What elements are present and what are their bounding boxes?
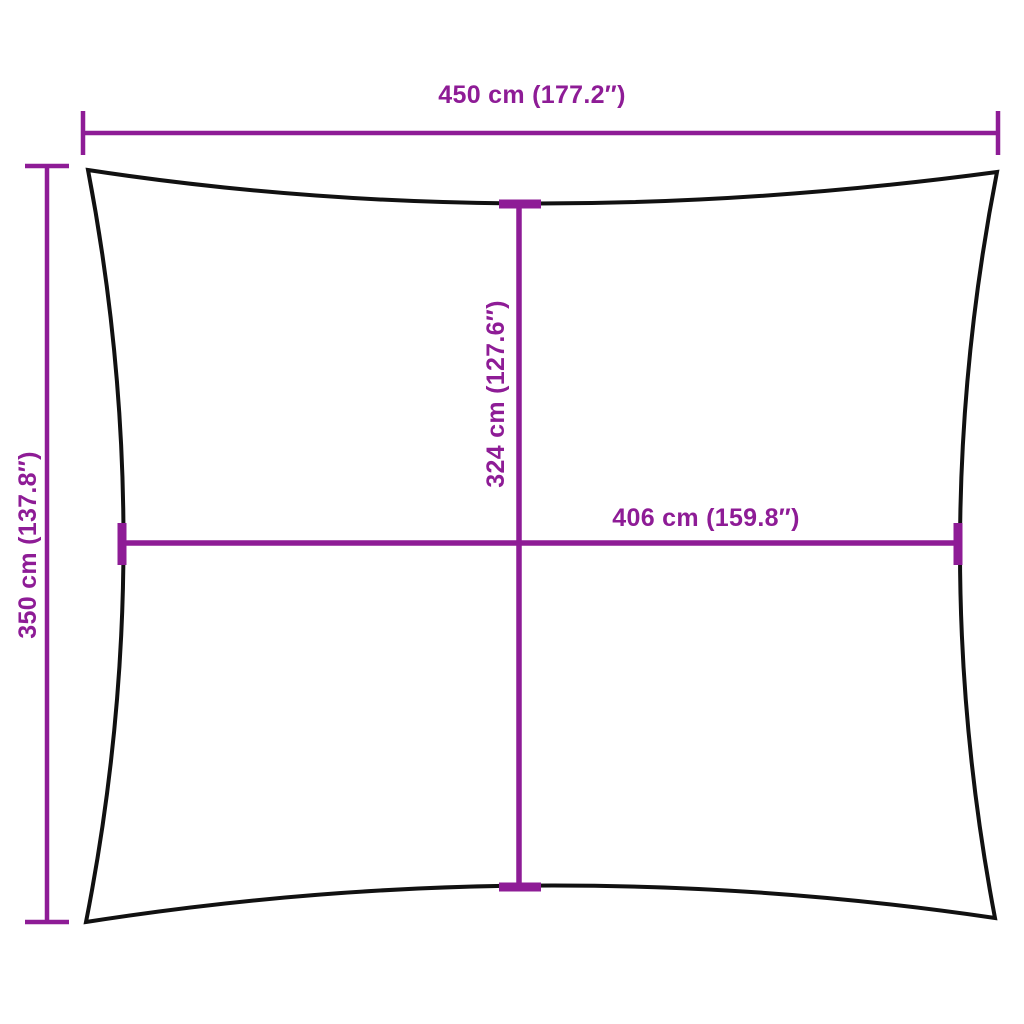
inner-width-label: 406 cm (159.8″) <box>506 503 906 533</box>
dimension-diagram: 450 cm (177.2″) 350 cm (137.8″) 324 cm (… <box>0 0 1024 1024</box>
top-width-dimension-line <box>83 111 998 155</box>
shade-sail-outline <box>86 170 997 922</box>
left-height-label: 350 cm (137.8″) <box>13 345 43 745</box>
inner-height-label: 324 cm (127.6″) <box>481 194 511 594</box>
top-width-label: 450 cm (177.2″) <box>332 80 732 110</box>
